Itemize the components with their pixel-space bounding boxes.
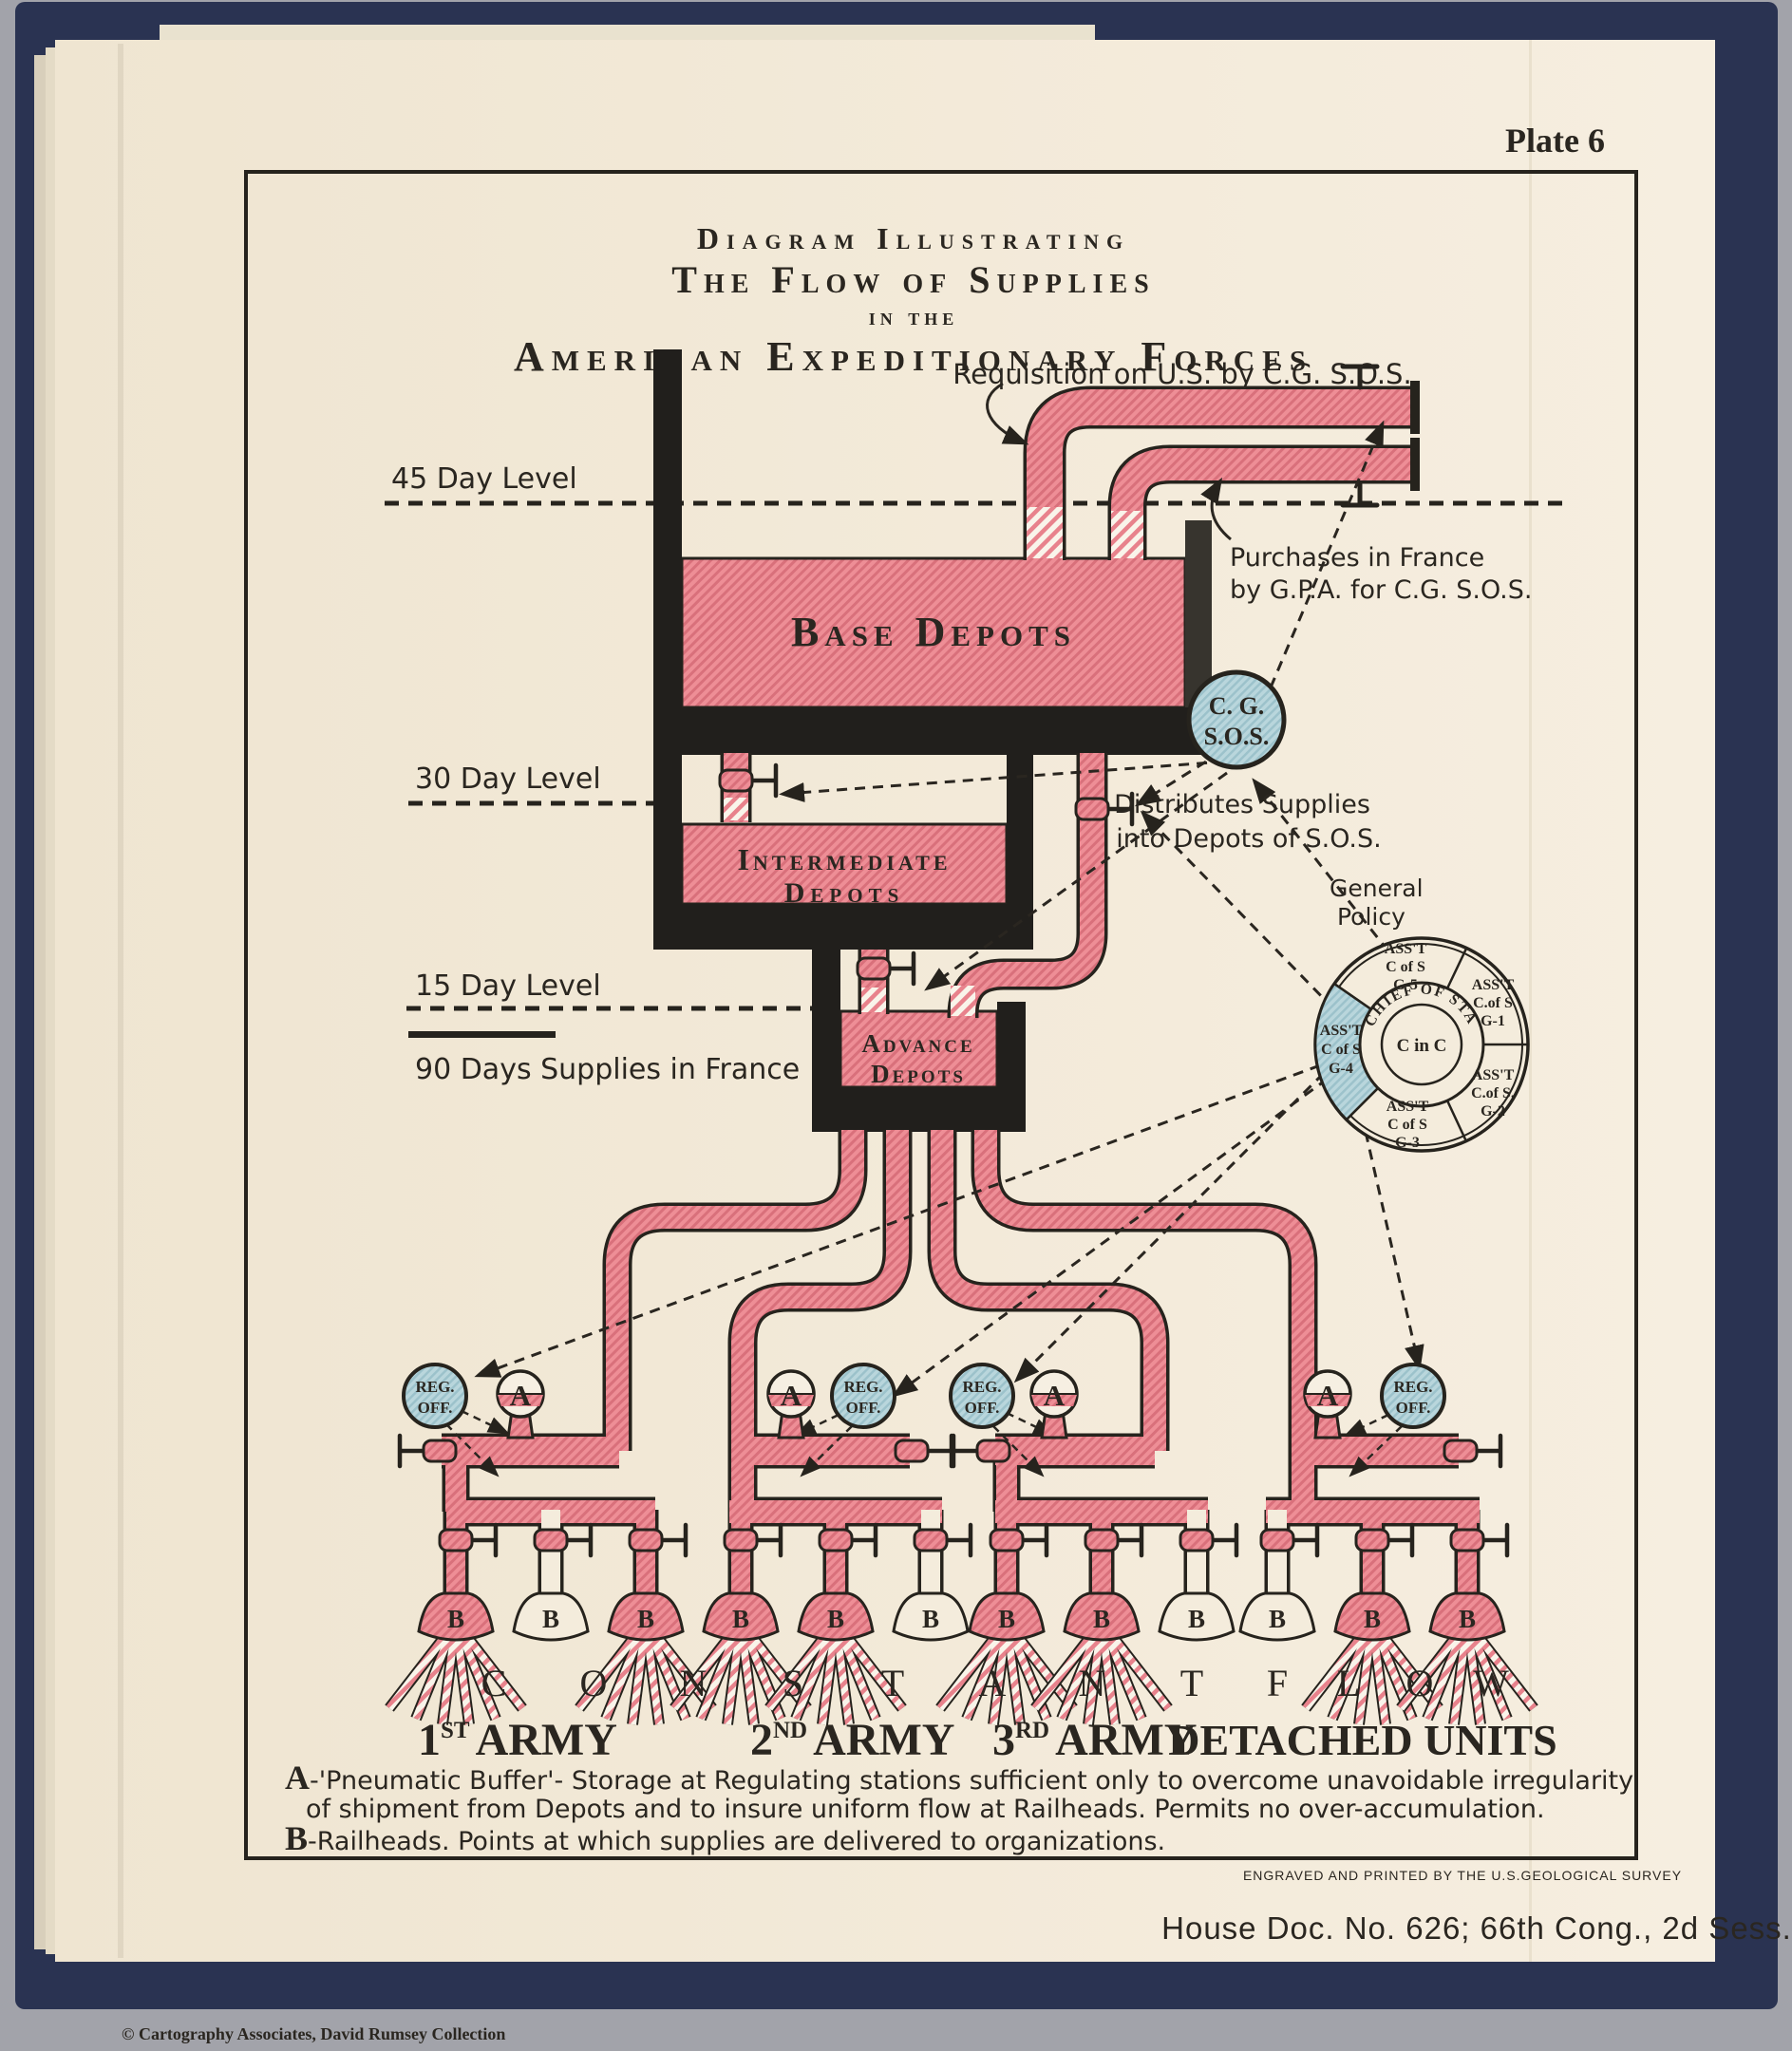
g5-l3: G-5 <box>1393 977 1418 993</box>
g1-l1: ASS'T <box>1472 977 1515 993</box>
level-15-label: 15 Day Level <box>415 969 601 1003</box>
cg-sos-circle <box>1189 672 1284 767</box>
general-policy-line2: Policy <box>1337 903 1405 931</box>
cf-letter: T <box>1180 1662 1203 1704</box>
cf-letter: S <box>783 1662 803 1704</box>
railhead-letter: B <box>1269 1605 1286 1633</box>
army-word: ARMY <box>476 1715 617 1765</box>
reg-office-3rd <box>951 1364 1013 1427</box>
railhead-letter: B <box>1188 1605 1205 1633</box>
cf-letter: O <box>580 1662 608 1704</box>
army-sup: ST <box>441 1718 470 1743</box>
reg-label: REG. <box>1393 1378 1432 1396</box>
army-sup: RD <box>1015 1718 1049 1743</box>
legend-b-letter: B <box>285 1819 308 1857</box>
army-label-detached: DETACHED UNITS <box>1168 1716 1556 1764</box>
intermediate-label-1: Intermediate <box>737 842 951 876</box>
g5-l2: C of S <box>1386 959 1425 975</box>
total-rule <box>408 1031 556 1038</box>
supplies-total-label: 90 Days Supplies in France <box>415 1053 800 1086</box>
g2-l1: ASS'T <box>1472 1067 1515 1083</box>
cf-letter: C <box>481 1662 507 1704</box>
engraver-credit: ENGRAVED AND PRINTED BY THE U.S.GEOLOGIC… <box>1243 1868 1682 1883</box>
railhead-letter: B <box>1459 1605 1476 1633</box>
railhead-letter: B <box>542 1605 559 1633</box>
cf-letter: N <box>1079 1662 1106 1704</box>
advance-label-2: Depots <box>871 1060 966 1088</box>
cf-letter: T <box>881 1662 904 1704</box>
purchases-pipe-flange <box>1410 438 1420 491</box>
cf-letter: W <box>1473 1662 1509 1704</box>
house-doc-citation: House Doc. No. 626; 66th Cong., 2d Sess. <box>1161 1910 1792 1946</box>
distributes-line2: into Depots of S.O.S. <box>1116 824 1381 854</box>
army-num: 1 <box>418 1715 441 1765</box>
buffer-letter: A <box>510 1379 532 1412</box>
g4-l2: C of S <box>1321 1042 1361 1058</box>
g5-l1: ASS'T <box>1385 941 1427 957</box>
base-depots-floor <box>653 707 1212 755</box>
general-policy-line1: General <box>1330 875 1424 902</box>
buffer-letter: A <box>781 1379 802 1412</box>
base-depots-label: Base Depots <box>791 609 1076 655</box>
distributes-line1: Distributes Supplies <box>1114 790 1370 819</box>
g4-l1: ASS'T <box>1320 1023 1363 1039</box>
cg-sos-line1: C. G. <box>1209 692 1265 720</box>
paper-crease <box>1529 40 1532 1962</box>
title-line-2: The Flow of Supplies <box>671 258 1155 301</box>
requisition-label: Requisition on U.S. by C.G. S.O.S. <box>953 358 1411 390</box>
army-sup: ND <box>773 1718 807 1743</box>
title-line-1: Diagram Illustrating <box>697 221 1130 255</box>
level-30-label: 30 Day Level <box>415 762 601 796</box>
reg-label: REG. <box>415 1378 454 1396</box>
cf-letter: F <box>1267 1662 1288 1704</box>
title-line-3: in the <box>869 303 959 330</box>
reg-office-detached <box>1382 1364 1444 1427</box>
army-num: 3 <box>992 1715 1015 1765</box>
page-stack-edge-2 <box>46 47 55 1954</box>
reg-label: REG. <box>843 1378 882 1396</box>
page-stack-edge <box>34 55 46 1949</box>
buffer-letter: A <box>1317 1379 1339 1412</box>
legend-a-letter: A <box>285 1759 310 1797</box>
level-45-label: 45 Day Level <box>391 462 577 496</box>
g3-l2: C of S <box>1387 1117 1427 1133</box>
railhead-letter: B <box>637 1605 654 1633</box>
g1-l3: G-1 <box>1481 1013 1505 1029</box>
railhead-letter: B <box>447 1605 464 1633</box>
railhead-letter: B <box>732 1605 749 1633</box>
legend-b-text: -Railheads. Points at which supplies are… <box>308 1827 1165 1856</box>
railhead-letter: B <box>1093 1605 1110 1633</box>
g4-l3: G-4 <box>1329 1061 1353 1077</box>
copyright-notice: © Cartography Associates, David Rumsey C… <box>122 2024 505 2043</box>
reg-label: OFF. <box>418 1399 453 1417</box>
intermediate-floor <box>653 904 1033 950</box>
wheel-center-label: C in C <box>1397 1036 1447 1056</box>
advance-floor <box>812 1087 1026 1132</box>
railhead-letter: B <box>827 1605 844 1633</box>
railhead-letter: B <box>1364 1605 1381 1633</box>
legend-a-text1: -'Pneumatic Buffer'- Storage at Regulati… <box>310 1766 1633 1796</box>
reg-label: OFF. <box>1396 1399 1431 1417</box>
railhead-letter: B <box>998 1605 1015 1633</box>
cf-letter: A <box>979 1662 1007 1704</box>
base-depots-left-wall <box>653 349 682 755</box>
g2-l2: C.of S. <box>1471 1085 1515 1101</box>
army-num: 2 <box>750 1715 773 1765</box>
army-word: ARMY <box>813 1715 954 1765</box>
purchases-label-2: by G.P.A. for C.G. S.O.S. <box>1230 575 1532 605</box>
reg-label: OFF. <box>965 1399 1000 1417</box>
scanned-page: Plate 6 Diagram Illustrating The Flow of… <box>0 0 1792 2051</box>
intermediate-label-2: Depots <box>784 877 905 909</box>
reg-office-1st <box>404 1364 466 1427</box>
railhead-letter: B <box>922 1605 939 1633</box>
cf-letter: L <box>1337 1662 1360 1704</box>
cf-letter: N <box>680 1662 707 1704</box>
g1-l2: C.of S <box>1473 995 1513 1011</box>
reg-label: OFF. <box>846 1399 881 1417</box>
buffer-letter: A <box>1044 1379 1066 1412</box>
page-gutter-shadow <box>118 44 123 1958</box>
plate-number: Plate 6 <box>1505 122 1605 160</box>
cg-sos-line2: S.O.S. <box>1204 723 1270 750</box>
cf-letter: O <box>1406 1662 1434 1704</box>
g2-l3: G-2 <box>1481 1103 1505 1120</box>
g3-l1: ASS'T <box>1386 1099 1429 1115</box>
advance-label-1: Advance <box>861 1029 974 1058</box>
diagram-canvas: Plate 6 Diagram Illustrating The Flow of… <box>0 0 1792 2051</box>
purchases-label-1: Purchases in France <box>1230 543 1484 573</box>
reg-office-2nd <box>832 1364 895 1427</box>
legend-a-line2: of shipment from Depots and to insure un… <box>306 1795 1545 1824</box>
reg-label: REG. <box>962 1378 1001 1396</box>
g3-l3: G-3 <box>1395 1135 1420 1151</box>
